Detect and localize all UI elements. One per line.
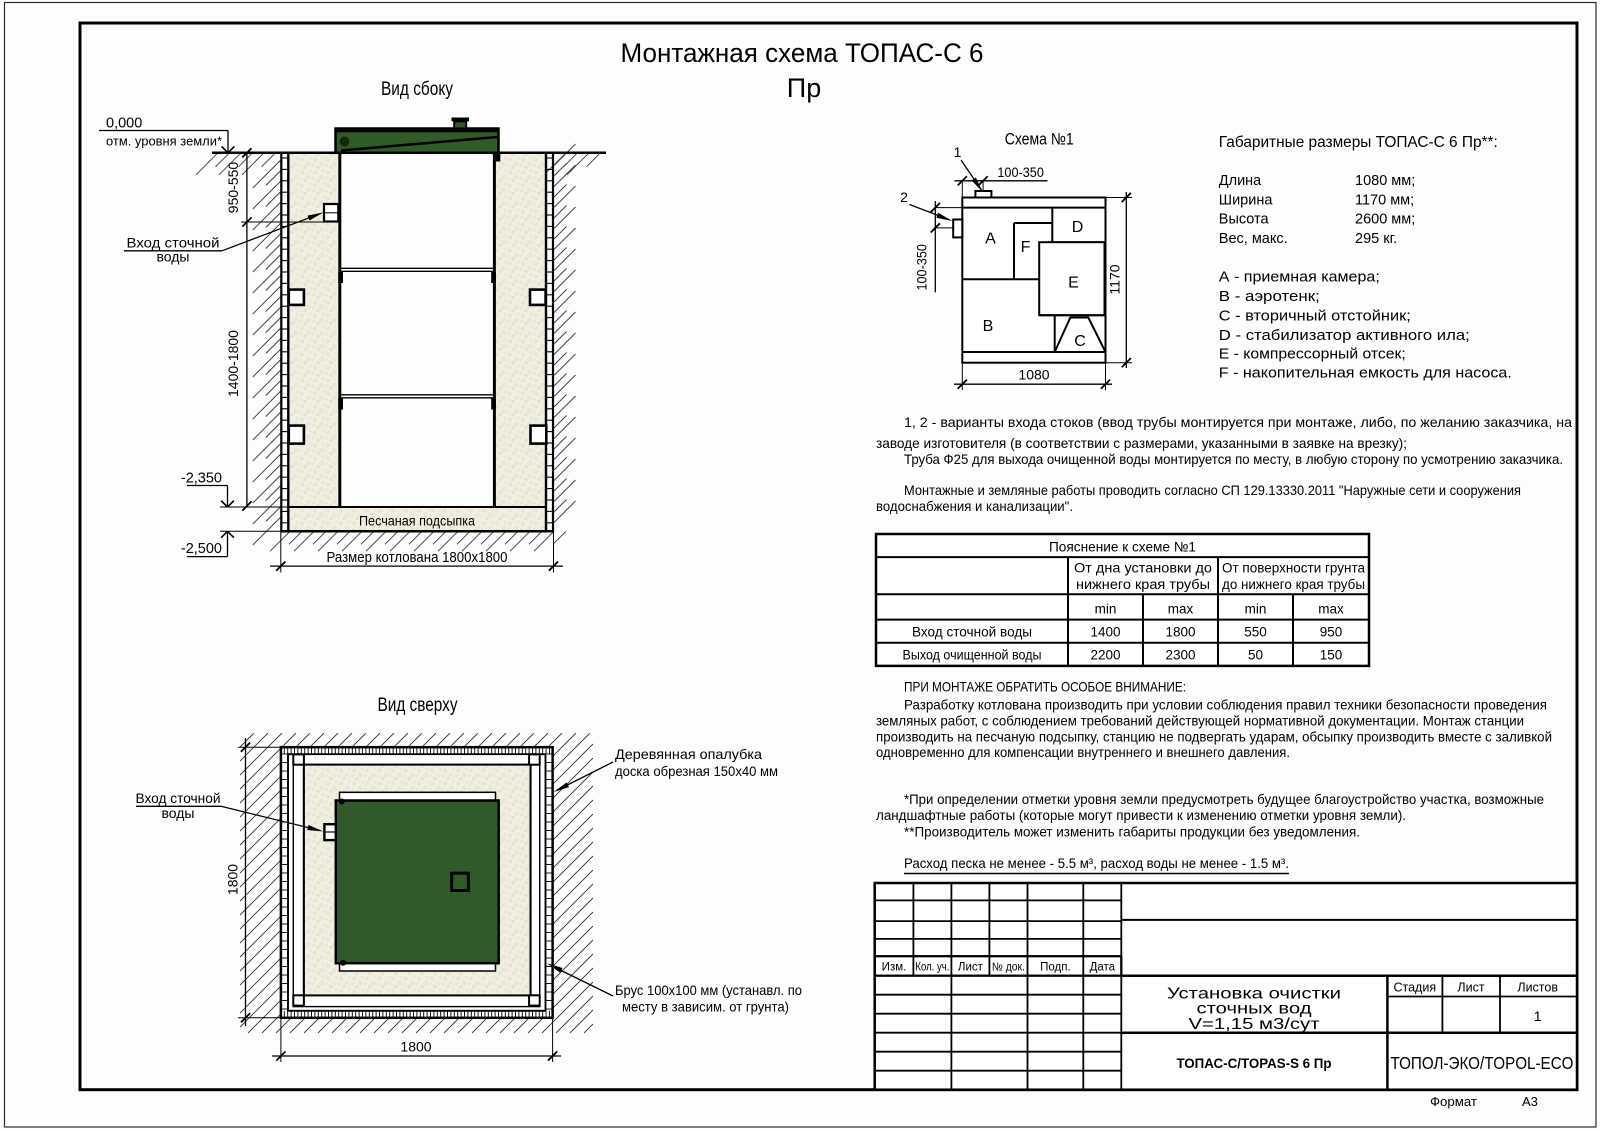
svg-text:2600 мм;: 2600 мм;: [1355, 212, 1415, 228]
svg-text:295 кг.: 295 кг.: [1355, 231, 1397, 247]
svg-text:1170 мм;: 1170 мм;: [1355, 193, 1414, 209]
svg-text:В - аэротенк;: В - аэротенк;: [1219, 289, 1320, 305]
svg-text:А3: А3: [1522, 1094, 1538, 1109]
svg-text:550: 550: [1244, 625, 1267, 640]
svg-text:Труба Ф25 для выхода очищенной: Труба Ф25 для выхода очищенной воды монт…: [904, 451, 1563, 467]
svg-text:месту в зависим. от грунта): месту в зависим. от грунта): [622, 999, 789, 1015]
svg-text:Формат: Формат: [1430, 1094, 1477, 1109]
svg-text:Монтажная схема ТОПАС-С 6: Монтажная схема ТОПАС-С 6: [621, 38, 984, 68]
svg-text:доска обрезная 150х40 мм: доска обрезная 150х40 мм: [615, 763, 778, 779]
svg-text:950-550: 950-550: [225, 162, 241, 214]
svg-text:Вход сточной: Вход сточной: [136, 790, 221, 806]
svg-text:№ док.: № док.: [992, 962, 1025, 974]
svg-text:1: 1: [1534, 1008, 1542, 1024]
svg-text:1080 мм;: 1080 мм;: [1355, 173, 1415, 189]
svg-text:Вход сточной воды: Вход сточной воды: [912, 625, 1032, 640]
svg-text:B: B: [983, 318, 994, 335]
svg-text:**Производитель может изменить: **Производитель может изменить габариты …: [904, 824, 1360, 840]
svg-text:Разработку котлована производи: Разработку котлована производить при усл…: [904, 697, 1547, 713]
svg-text:Габаритные размеры ТОПАС-С 6 П: Габаритные размеры ТОПАС-С 6 Пр**:: [1219, 134, 1498, 151]
svg-text:Пояснение к схеме №1: Пояснение к схеме №1: [1049, 539, 1196, 555]
svg-text:Вес, макс.: Вес, макс.: [1219, 231, 1288, 247]
svg-text:1400-1800: 1400-1800: [225, 330, 241, 397]
svg-text:сточных вод: сточных вод: [1197, 1001, 1313, 1018]
svg-text:F - накопительная емкость для: F - накопительная емкость для насоса.: [1219, 366, 1512, 382]
svg-text:2300: 2300: [1165, 648, 1195, 663]
svg-text:земляных работ, с соблюдением: земляных работ, с соблюдением требований…: [876, 713, 1524, 729]
svg-text:водоснабжения и канализации".: водоснабжения и канализации".: [876, 498, 1073, 514]
svg-text:ТОПАС-С/TOPAS-S 6 Пр: ТОПАС-С/TOPAS-S 6 Пр: [1177, 1055, 1332, 1071]
svg-text:Расход песка не менее - 5.5 м³: Расход песка не менее - 5.5 м³, расход в…: [904, 855, 1289, 871]
svg-text:950: 950: [1320, 625, 1343, 640]
svg-text:Деревянная опалубка: Деревянная опалубка: [615, 746, 762, 762]
svg-text:100-350: 100-350: [997, 164, 1044, 180]
svg-text:2: 2: [900, 189, 908, 205]
svg-text:От поверхности грунта: От поверхности грунта: [1222, 561, 1365, 576]
svg-text:производить на песчаную подсып: производить на песчаную подсыпку, станци…: [876, 729, 1552, 745]
svg-text:F: F: [1021, 239, 1031, 256]
svg-text:Лист: Лист: [1457, 981, 1484, 995]
svg-text:Ширина: Ширина: [1219, 193, 1274, 209]
svg-text:Выход очищенной воды: Выход очищенной воды: [903, 648, 1042, 663]
svg-text:1170: 1170: [1107, 264, 1123, 294]
svg-text:Вид сбоку: Вид сбоку: [381, 79, 453, 100]
svg-text:Монтажные и земляные работы пр: Монтажные и земляные работы проводить со…: [904, 482, 1521, 498]
svg-text:D - стабилизатор активного ила: D - стабилизатор активного ила;: [1219, 328, 1470, 344]
svg-text:Брус 100х100 мм (устанавл. по: Брус 100х100 мм (устанавл. по: [615, 982, 802, 998]
svg-text:ландшафтные работы (которые мо: ландшафтные работы (которые могут привес…: [876, 807, 1406, 823]
svg-text:От дна установки до: От дна установки до: [1074, 561, 1212, 576]
svg-text:воды: воды: [162, 805, 195, 821]
svg-text:A: A: [985, 231, 996, 248]
svg-text:Е - компрессорный отсек;: Е - компрессорный отсек;: [1219, 347, 1406, 363]
svg-text:1400: 1400: [1090, 625, 1120, 640]
svg-text:одновременно для компенсации в: одновременно для компенсации внутреннего…: [876, 744, 1290, 760]
svg-text:min: min: [1245, 602, 1267, 617]
svg-text:1: 1: [954, 144, 962, 160]
svg-text:Вид сверху: Вид сверху: [378, 695, 458, 716]
svg-text:0,000: 0,000: [106, 116, 142, 132]
svg-text:Длина: Длина: [1219, 173, 1262, 189]
svg-text:max: max: [1318, 602, 1344, 617]
svg-text:max: max: [1168, 602, 1194, 617]
svg-text:Лист: Лист: [958, 962, 984, 974]
svg-text:ПРИ МОНТАЖЕ ОБРАТИТЬ ОСОБОЕ ВН: ПРИ МОНТАЖЕ ОБРАТИТЬ ОСОБОЕ ВНИМАНИЕ:: [904, 679, 1186, 695]
svg-text:1800: 1800: [225, 864, 241, 895]
svg-text:V=1,15 м3/сут: V=1,15 м3/сут: [1189, 1016, 1321, 1033]
svg-text:150: 150: [1320, 648, 1343, 663]
svg-text:Листов: Листов: [1517, 981, 1558, 995]
svg-text:100-350: 100-350: [914, 244, 930, 291]
svg-text:А - приемная камера;: А - приемная камера;: [1219, 270, 1380, 286]
svg-text:50: 50: [1248, 648, 1263, 663]
svg-text:D: D: [1072, 219, 1084, 236]
svg-text:C: C: [1074, 333, 1086, 350]
svg-text:до нижнего края трубы: до нижнего края трубы: [1222, 577, 1365, 592]
svg-text:E: E: [1068, 275, 1079, 292]
svg-text:-2,500: -2,500: [181, 541, 222, 557]
svg-text:1800: 1800: [400, 1039, 431, 1055]
svg-text:ТОПОЛ-ЭКО/TOPOL-ECO: ТОПОЛ-ЭКО/TOPOL-ECO: [1391, 1053, 1574, 1073]
svg-text:-2,350: -2,350: [181, 470, 222, 486]
svg-text:отм. уровня земли*: отм. уровня земли*: [106, 134, 222, 148]
svg-text:1, 2 - варианты входа стоков: 1, 2 - варианты входа стоков (ввод трубы…: [904, 414, 1572, 430]
svg-text:Подп.: Подп.: [1040, 962, 1071, 974]
svg-text:Дата: Дата: [1090, 962, 1116, 974]
svg-text:Песчаная подсыпка: Песчаная подсыпка: [359, 514, 475, 529]
svg-text:Схема №1: Схема №1: [1005, 131, 1074, 149]
svg-text:нижнего края трубы: нижнего края трубы: [1076, 577, 1210, 592]
svg-text:1080: 1080: [1018, 367, 1049, 383]
svg-text:Пр: Пр: [787, 73, 821, 103]
svg-text:С - вторичный отстойник;: С - вторичный отстойник;: [1219, 309, 1411, 325]
svg-text:min: min: [1095, 602, 1117, 617]
svg-text:Размер котлована 1800х1800: Размер котлована 1800х1800: [327, 550, 508, 566]
svg-text:Стадия: Стадия: [1393, 981, 1436, 995]
svg-text:Высота: Высота: [1219, 212, 1270, 228]
svg-text:*При определении отметки уровн: *При определении отметки уровня земли пр…: [904, 791, 1544, 807]
svg-text:заводе изготовителя (в соответ: заводе изготовителя (в соответствии с ра…: [876, 435, 1407, 451]
svg-text:Изм.: Изм.: [882, 962, 907, 974]
svg-text:1800: 1800: [1165, 625, 1195, 640]
svg-text:2200: 2200: [1090, 648, 1120, 663]
svg-text:Кол. уч.: Кол. уч.: [915, 962, 949, 974]
